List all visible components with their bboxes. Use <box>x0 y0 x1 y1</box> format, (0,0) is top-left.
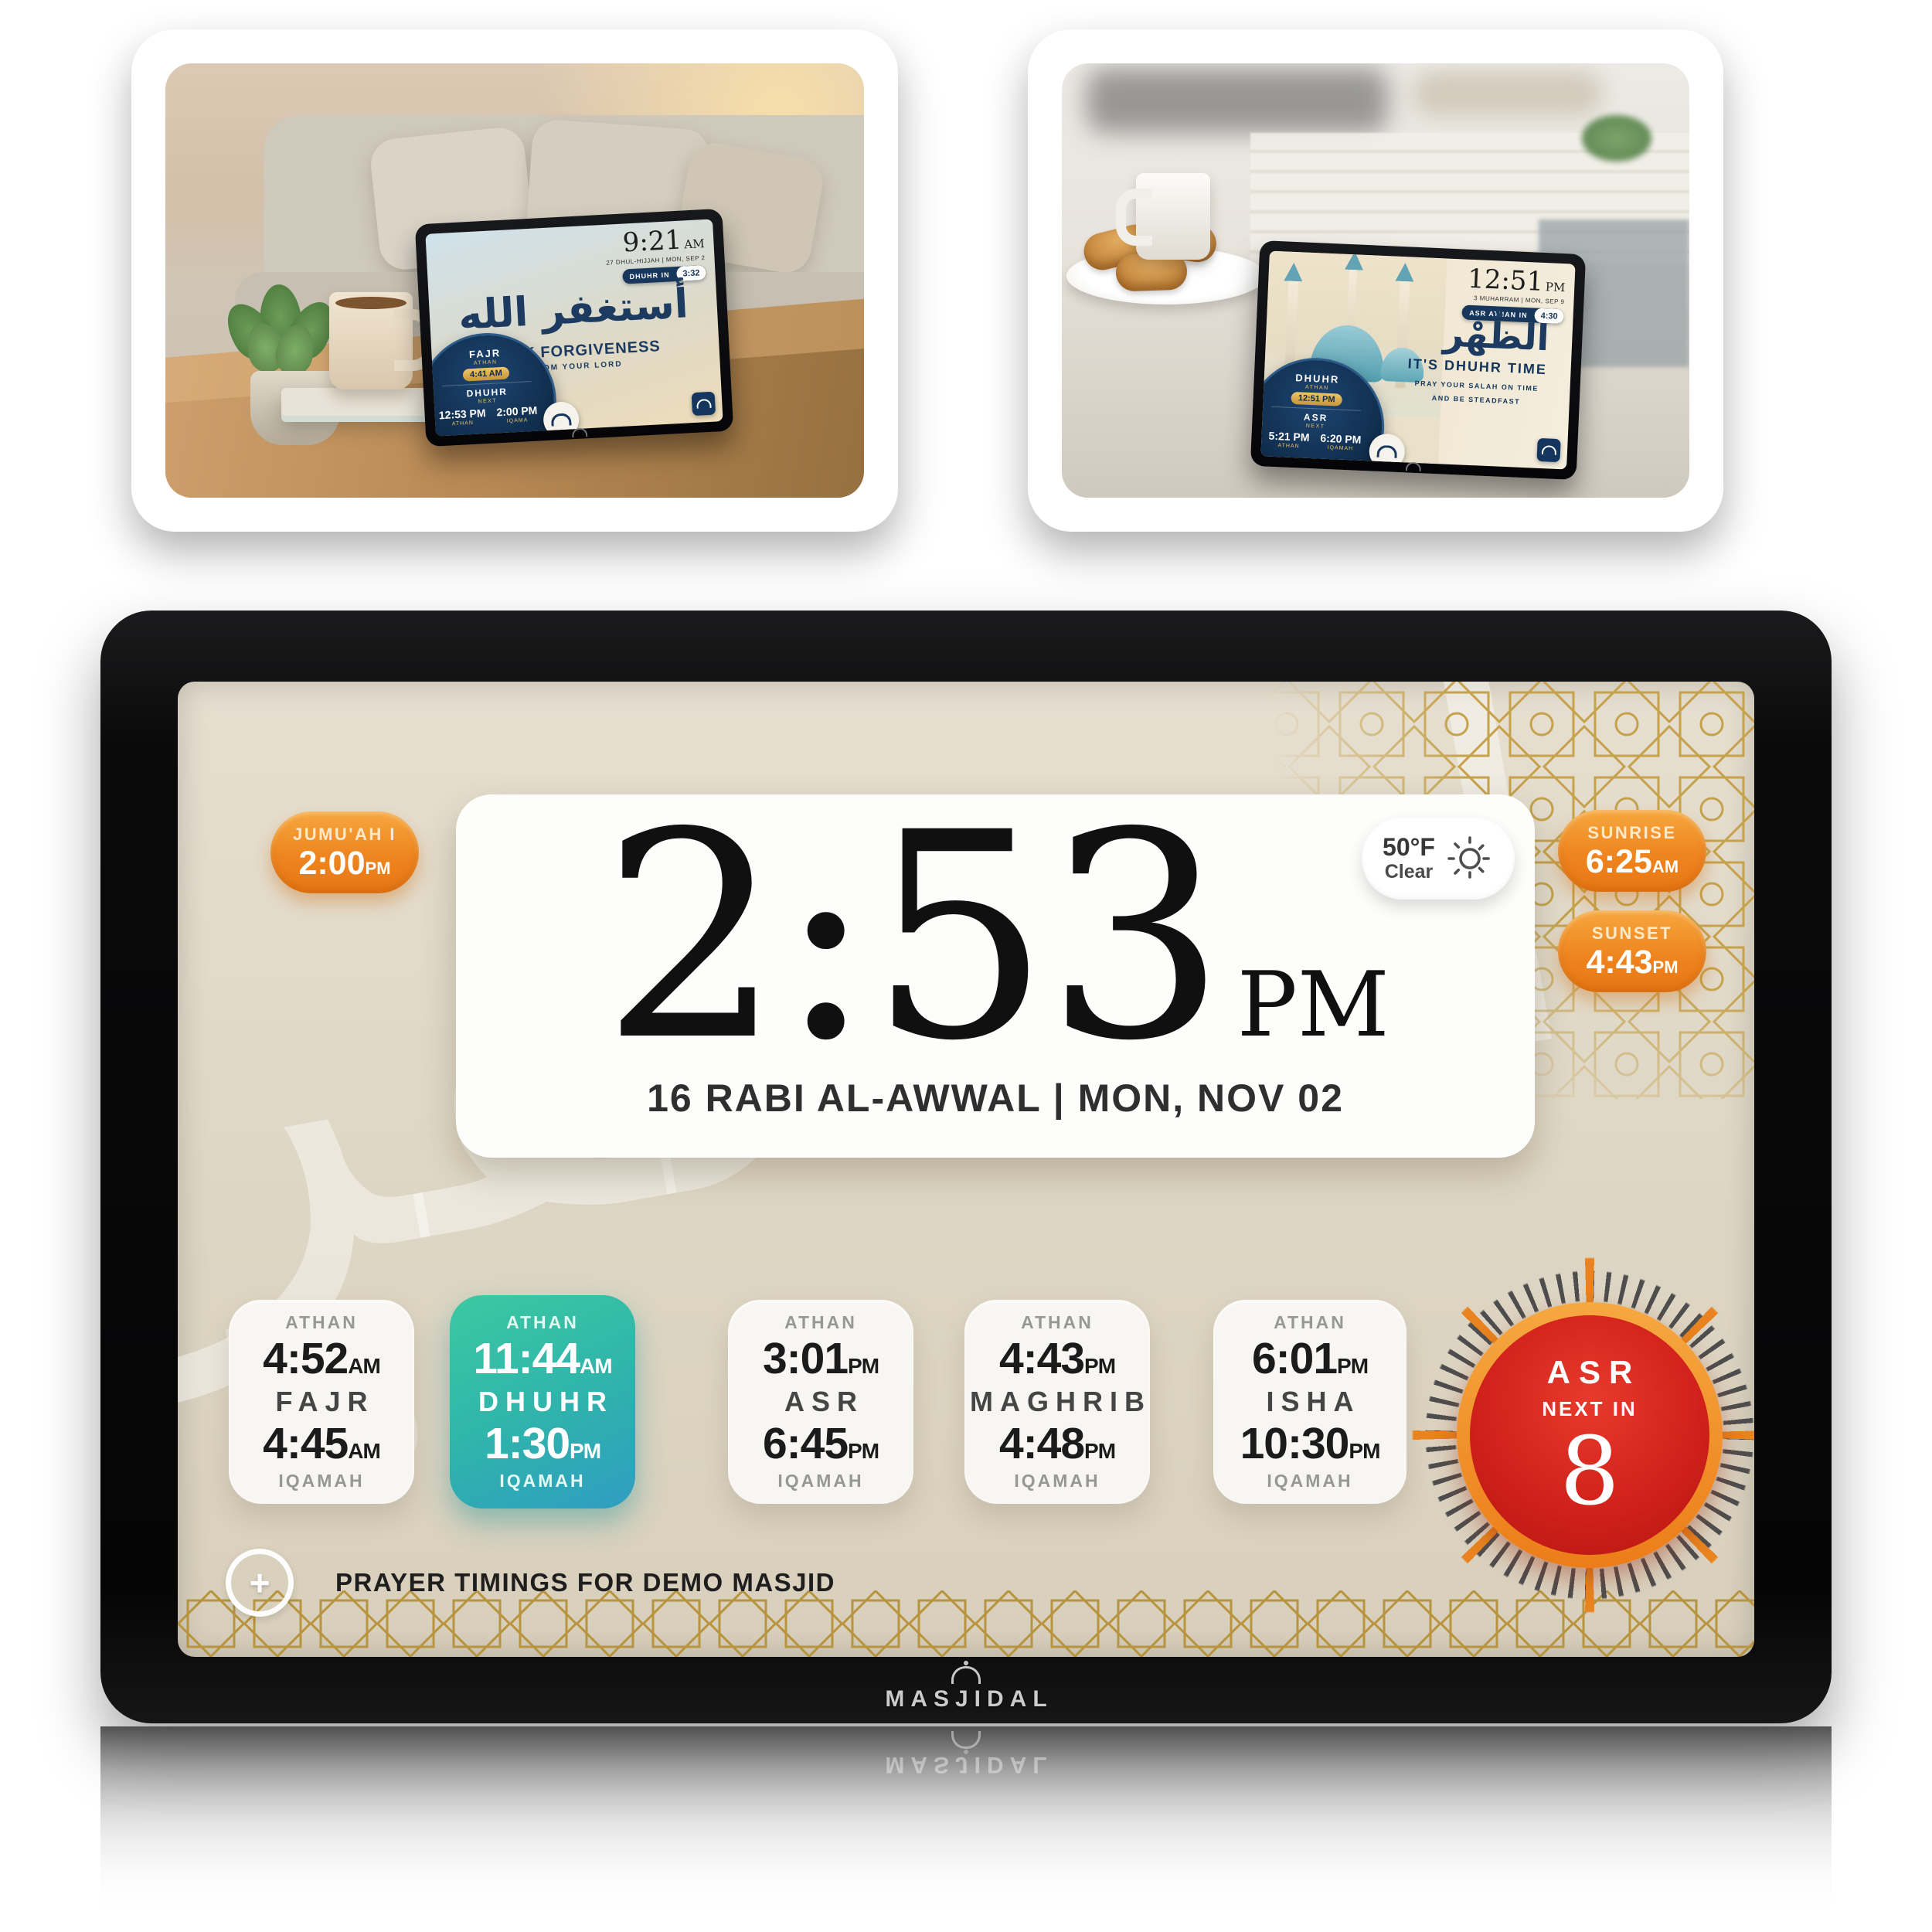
prayer-card-fajr: ATHAN 4:52AM FAJR 4:45AM IQAMAH <box>229 1300 414 1504</box>
mini-device-logo-icon <box>572 427 588 437</box>
athan-label: ATHAN <box>506 1312 579 1333</box>
countdown-circle: ASR NEXT IN 8 <box>1470 1315 1709 1555</box>
athan-meridiem: PM <box>848 1354 879 1378</box>
athan-meridiem: PM <box>1084 1354 1115 1378</box>
iqamah-time-value: 10:30 <box>1240 1419 1349 1468</box>
prayer-card-isha: ATHAN 6:01PM ISHA 10:30PM IQAMAH <box>1213 1300 1406 1504</box>
athan-label: ATHAN <box>285 1312 358 1333</box>
masjidal-badge-icon <box>1536 438 1560 462</box>
sunrise-time-value: 6:25 <box>1586 843 1652 880</box>
countdown-prayer: ASR <box>1547 1354 1641 1391</box>
athan-time-value: 11:44 <box>473 1334 580 1383</box>
prayer-name: FAJR <box>275 1386 374 1418</box>
widget-iqamah-time: 6:20 PM <box>1320 432 1362 446</box>
widget-iqamah: 2:00 PMIQAMA <box>496 404 538 425</box>
iqamah-label: IQAMAH <box>278 1471 364 1492</box>
prayer-clock-device-photo2: 12:51PM 3 MUHARRAM | MON, SEP 9 ASR ATHA… <box>1250 240 1586 480</box>
masjidal-prayer-clock: استغفر ثنا <box>100 611 1832 1723</box>
time-value: 2:53 <box>601 790 1221 1086</box>
footer-text: PRAYER TIMINGS FOR DEMO MASJID <box>335 1568 835 1597</box>
iqamah-time-value: 4:45 <box>263 1419 348 1468</box>
masjidal-badge-icon <box>692 392 716 417</box>
countdown-ring: ASR NEXT IN 8 <box>1457 1302 1723 1568</box>
time-meridiem: PM <box>1237 953 1389 1057</box>
sunrise-label: SUNRISE <box>1587 823 1676 843</box>
mini-countdown-value: 3:32 <box>676 265 706 281</box>
mini-time: 9:21AM <box>604 226 705 257</box>
mini-time-value: 12:51 <box>1467 264 1544 298</box>
widget-times: 5:21 PMATHAN 6:20 PMIQAMAH <box>1260 429 1381 453</box>
mini-meridiem: AM <box>684 236 705 251</box>
iqamah-meridiem: PM <box>848 1439 879 1463</box>
widget-athan-time: 12:53 PM <box>438 406 485 421</box>
iqamah-label: IQAMAH <box>1267 1471 1352 1492</box>
sunset-time: 4:43PM <box>1586 946 1678 979</box>
prayer-card-maghrib: ATHAN 4:43PM MAGHRIB 4:48PM IQAMAH <box>964 1300 1150 1504</box>
prayer-name: ASR <box>784 1386 864 1418</box>
mini-time: 12:51PM <box>1463 265 1566 296</box>
iqamah-label: IQAMAH <box>499 1471 585 1492</box>
jumuah-badge: JUMU'AH I 2:00PM <box>270 811 419 893</box>
iqamah-time: 10:30PM <box>1240 1421 1380 1468</box>
sunrise-meridiem: AM <box>1652 857 1679 876</box>
lifestyle-photo-living-room: 9:21AM 27 DHUL-HIJJAH | MON, SEP 2 DHUHR… <box>165 63 864 498</box>
prayer-card-dhuhr-active: ATHAN 11:44AM DHUHR 1:30PM IQAMAH <box>450 1295 635 1509</box>
widget-iqamah-time: 2:00 PM <box>496 404 538 419</box>
device-reflection: MASJIDAL <box>100 1726 1832 1929</box>
iqamah-time: 4:48PM <box>999 1421 1115 1468</box>
dome-icon <box>1541 445 1556 455</box>
iqamah-label: IQAMAH <box>777 1471 863 1492</box>
clock-card: 2:53PM 16 RABI AL-AWWAL | MON, NOV 02 50… <box>456 794 1535 1158</box>
athan-time-value: 3:01 <box>763 1334 848 1383</box>
kitchen-shelf <box>1413 72 1602 115</box>
kitchen-hood <box>1087 68 1388 133</box>
widget-iqamah: 6:20 PMIQAMAH <box>1320 432 1362 452</box>
iqamah-meridiem: PM <box>570 1439 600 1463</box>
photo-frame-living-room: 9:21AM 27 DHUL-HIJJAH | MON, SEP 2 DHUHR… <box>131 29 898 532</box>
athan-time-value: 4:52 <box>263 1334 348 1383</box>
brand-name-reflection: MASJIDAL <box>885 1751 1053 1777</box>
prayer-widget-circle: FAJR ATHAN 4:41 AM DHUHR NEXT 12:53 PMAT… <box>425 329 560 436</box>
jumuah-time: 2:00PM <box>298 847 390 880</box>
weather-text: 50°F Clear <box>1383 834 1435 883</box>
prayer-card-asr: ATHAN 3:01PM ASR 6:45PM IQAMAH <box>728 1300 913 1504</box>
athan-meridiem: AM <box>348 1354 380 1378</box>
iqamah-time-value: 6:45 <box>763 1419 848 1468</box>
iqamah-meridiem: PM <box>1084 1439 1115 1463</box>
arabic-calligraphy: الظُهْر <box>1443 312 1550 359</box>
athan-label: ATHAN <box>1274 1312 1346 1333</box>
iqamah-time: 4:45AM <box>263 1421 380 1468</box>
clock-screen: استغفر ثنا <box>178 682 1754 1657</box>
widget-athan: 12:53 PMATHAN <box>438 406 486 427</box>
device-screen: 9:21AM 27 DHUL-HIJJAH | MON, SEP 2 DHUHR… <box>425 219 723 436</box>
prayer-name: MAGHRIB <box>970 1386 1151 1418</box>
athan-time: 4:52AM <box>263 1336 380 1383</box>
iqamah-time: 1:30PM <box>485 1421 600 1468</box>
mini-time-value: 9:21 <box>622 225 682 259</box>
prayer-name: ISHA <box>1266 1386 1360 1418</box>
mini-time-block: 9:21AM 27 DHUL-HIJJAH | MON, SEP 2 DHUHR… <box>604 226 706 285</box>
athan-time-value: 4:43 <box>999 1334 1084 1383</box>
brand-name: MASJIDAL <box>885 1686 1053 1713</box>
widget-athan-label: ATHAN <box>1268 443 1309 450</box>
prayer-name: DHUHR <box>478 1386 614 1418</box>
athan-time: 3:01PM <box>763 1336 879 1383</box>
prayer-clock-device-photo1: 9:21AM 27 DHUL-HIJJAH | MON, SEP 2 DHUHR… <box>415 209 734 447</box>
sunset-time-value: 4:43 <box>1586 944 1652 981</box>
sun-icon <box>1446 835 1494 883</box>
mini-date: 3 MUHARRAM | MON, SEP 9 <box>1463 294 1565 305</box>
date-line: 16 RABI AL-AWWAL | MON, NOV 02 <box>456 1076 1535 1121</box>
athan-time: 11:44AM <box>473 1336 611 1383</box>
white-mug <box>1136 173 1210 260</box>
athan-label: ATHAN <box>1021 1312 1094 1333</box>
dome-icon <box>696 399 712 409</box>
widget-athan-time: 5:21 PM <box>1268 430 1310 444</box>
mini-device-logo-icon <box>1406 461 1422 471</box>
iqamah-time-value: 1:30 <box>485 1419 570 1468</box>
photo-frame-kitchen: 12:51PM 3 MUHARRAM | MON, SEP 9 ASR ATHA… <box>1028 29 1723 532</box>
product-image: 9:21AM 27 DHUL-HIJJAH | MON, SEP 2 DHUHR… <box>0 0 1932 1932</box>
widget-iqamah-label: IQAMAH <box>1320 445 1361 452</box>
mini-meridiem: PM <box>1545 280 1565 294</box>
athan-time-value: 6:01 <box>1252 1334 1337 1383</box>
reflected-brand: MASJIDAL <box>100 1731 1832 1777</box>
countdown-value: 8 <box>1560 1427 1620 1517</box>
iqamah-label: IQAMAH <box>1014 1471 1100 1492</box>
mini-countdown-label: DHUHR IN <box>622 270 676 281</box>
coffee-mug <box>329 292 413 389</box>
athan-time: 4:43PM <box>999 1336 1115 1383</box>
next-prayer-countdown: ASR NEXT IN 8 <box>1414 1260 1754 1611</box>
jumuah-meridiem: PM <box>366 859 391 878</box>
weather-widget: 50°F Clear <box>1362 818 1515 900</box>
plus-icon: + <box>226 1549 294 1617</box>
bezel-brand: MASJIDAL <box>100 1666 1832 1713</box>
lifestyle-photo-kitchen: 12:51PM 3 MUHARRAM | MON, SEP 9 ASR ATHA… <box>1062 63 1689 498</box>
masjidal-logo-icon-reflection <box>951 1731 981 1749</box>
device-screen: 12:51PM 3 MUHARRAM | MON, SEP 9 ASR ATHA… <box>1260 250 1575 469</box>
weather-condition: Clear <box>1383 861 1435 883</box>
widget-iqamah-label: IQAMA <box>497 417 538 425</box>
athan-label: ATHAN <box>784 1312 857 1333</box>
masjidal-logo-icon <box>951 1666 981 1684</box>
athan-meridiem: AM <box>580 1354 612 1378</box>
sunrise-badge: SUNRISE 6:25AM <box>1558 810 1706 892</box>
iqamah-meridiem: PM <box>1349 1439 1379 1463</box>
iqamah-time-value: 4:48 <box>999 1419 1084 1468</box>
widget-times: 12:53 PMATHAN 2:00 PMIQAMA <box>425 403 555 428</box>
sunrise-time: 6:25AM <box>1586 845 1679 879</box>
arabic-calligraphy: أستغفر الله <box>457 281 689 338</box>
jumuah-label: JUMU'AH I <box>293 825 396 845</box>
screen-footer: + PRAYER TIMINGS FOR DEMO MASJID <box>226 1549 835 1617</box>
widget-athan: 5:21 PMATHAN <box>1268 430 1310 450</box>
iqamah-time: 6:45PM <box>763 1421 879 1468</box>
weather-temp: 50°F <box>1383 834 1435 861</box>
widget-time-badge: 12:51 PM <box>1291 392 1342 406</box>
jumuah-time-value: 2:00 <box>298 845 365 882</box>
sunset-badge: SUNSET 4:43PM <box>1558 910 1706 992</box>
iqamah-meridiem: AM <box>348 1439 380 1463</box>
sunset-label: SUNSET <box>1592 923 1672 944</box>
sunset-meridiem: PM <box>1653 957 1679 977</box>
athan-time: 6:01PM <box>1252 1336 1368 1383</box>
widget-time-badge: 4:41 AM <box>463 366 510 381</box>
athan-meridiem: PM <box>1337 1354 1368 1378</box>
